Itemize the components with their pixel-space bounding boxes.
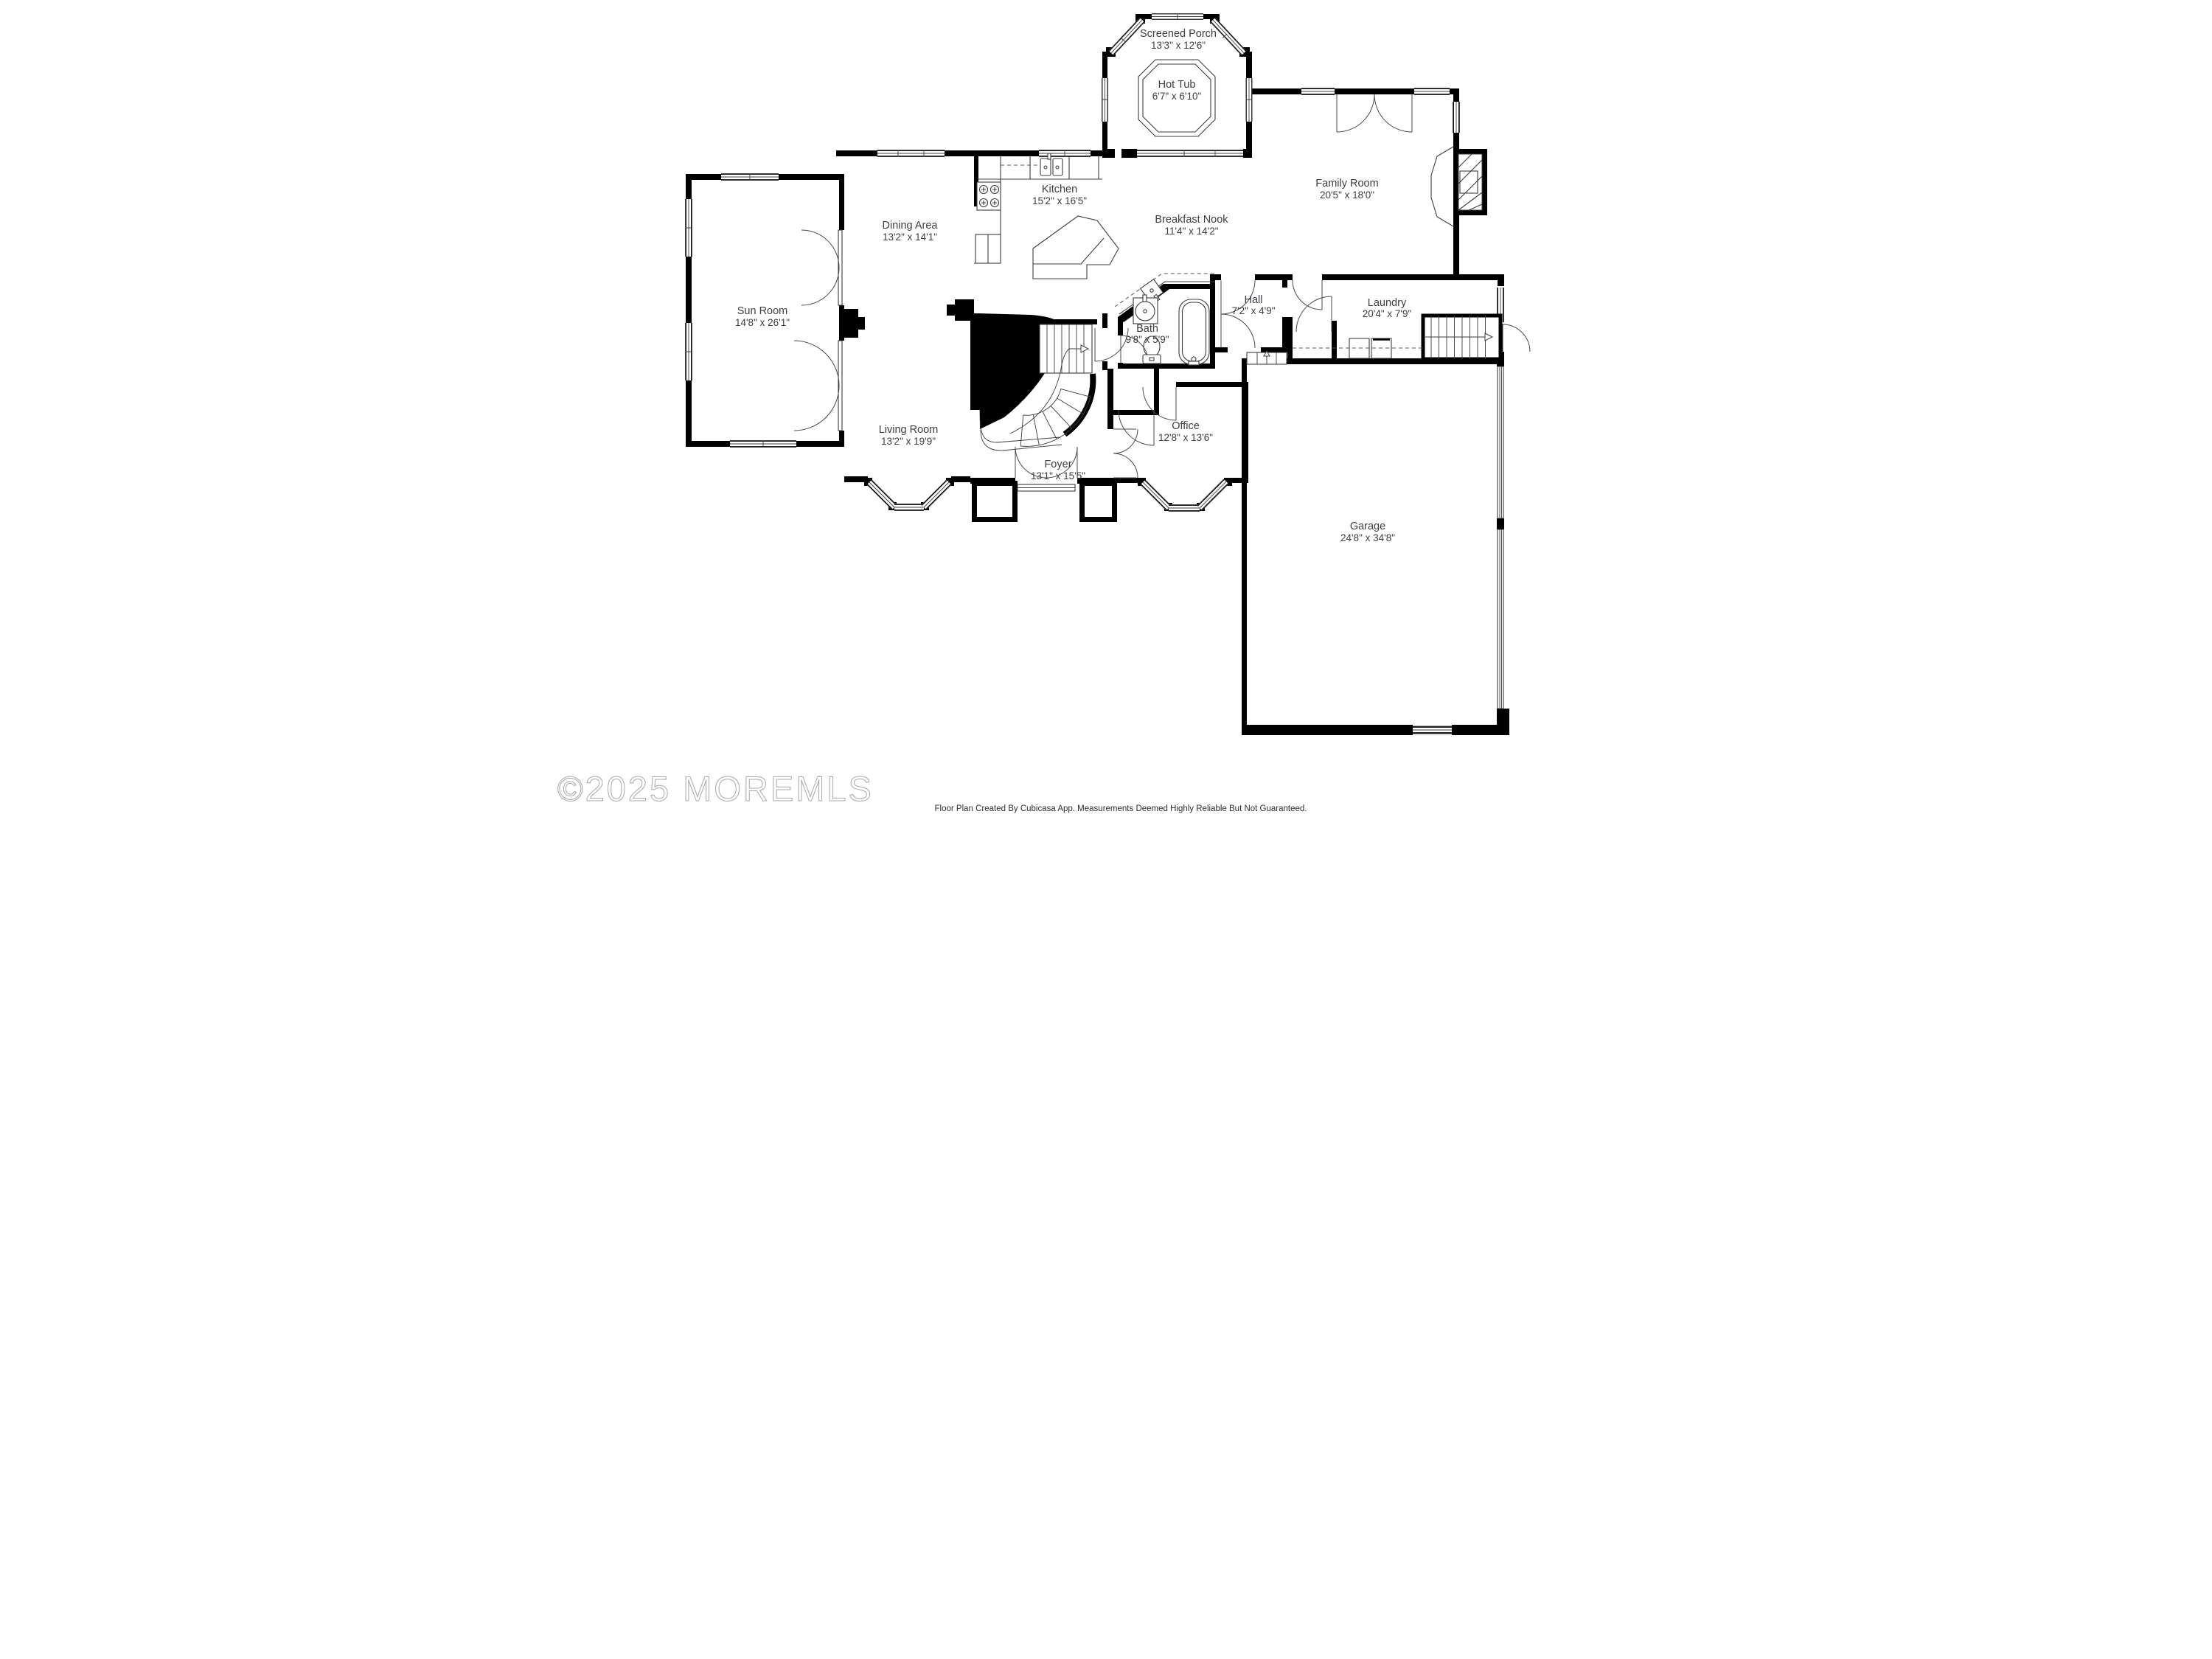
- sun-room-double-door-lower: [794, 341, 842, 431]
- floor-plan-page: Screened Porch 13'3" x 12'6" Hot Tub 6'7…: [553, 0, 1659, 829]
- window-sun-left-2: [686, 323, 692, 380]
- laundry-door: [1293, 280, 1322, 310]
- label-breakfast-nook: Breakfast Nook: [1155, 214, 1228, 226]
- floor-plan-svg: Screened Porch 13'3" x 12'6" Hot Tub 6'7…: [553, 0, 1659, 829]
- window-porch-diag-left: [1109, 18, 1144, 55]
- window-garage-bottom: [1413, 726, 1452, 734]
- bay-window-office: [1141, 479, 1228, 512]
- vestibule-door: [1095, 328, 1128, 361]
- walls: [686, 14, 1509, 735]
- watermark-text: ©2025 MOREMLS: [557, 769, 874, 808]
- label-hall: Hall: [1245, 294, 1263, 306]
- laundry-exterior-door: [1498, 324, 1530, 352]
- windows: [686, 14, 1504, 734]
- label-garage: Garage: [1350, 521, 1385, 532]
- sink-icon: [1133, 295, 1158, 324]
- bathtub-icon: [1179, 299, 1209, 365]
- label-sun-room: Sun Room: [737, 305, 788, 317]
- window-nook-slider: [1137, 150, 1243, 157]
- window-sun-top: [721, 174, 779, 181]
- label-screened-porch: Screened Porch: [1140, 28, 1217, 40]
- fireplace-icon: [1431, 147, 1487, 226]
- label-living-room: Living Room: [879, 424, 939, 436]
- window-family-right: [1453, 102, 1460, 133]
- room-labels: Screened Porch 13'3" x 12'6" Hot Tub 6'7…: [735, 28, 1411, 543]
- fridge-icon: [975, 234, 1001, 263]
- hall-inner-door: [1221, 314, 1255, 348]
- dims-sun-room: 14'8" x 26'1": [735, 317, 790, 328]
- family-room-double-door: [1337, 94, 1412, 132]
- window-dining-top: [877, 150, 945, 157]
- dims-living-room: 13'2" x 19'9": [881, 436, 936, 447]
- dims-foyer: 13'1" x 15'5": [1031, 470, 1085, 481]
- label-foyer: Foyer: [1044, 459, 1071, 470]
- window-sun-left-1: [686, 199, 692, 257]
- stove-icon: [977, 182, 1001, 210]
- dims-office: 12'8" x 13'6": [1158, 432, 1213, 443]
- staircase-basement: [1247, 351, 1287, 364]
- dims-screened-porch: 13'3" x 12'6": [1151, 40, 1206, 51]
- bay-window-living-room: [867, 480, 951, 511]
- window-family-top-2: [1414, 88, 1450, 95]
- garage-door-2: [1498, 529, 1503, 709]
- footer-disclaimer: Floor Plan Created By Cubicasa App. Meas…: [935, 804, 1307, 813]
- office-double-door: [1113, 429, 1138, 478]
- dims-hot-tub: 6'7" x 6'10": [1152, 91, 1202, 102]
- entry-steps: [1018, 484, 1075, 491]
- garage-door-1: [1498, 366, 1503, 518]
- label-bath: Bath: [1136, 323, 1158, 335]
- window-sun-bottom: [730, 441, 796, 448]
- window-porch-left: [1102, 78, 1108, 122]
- dims-dining-area: 13'2" x 14'1": [883, 232, 937, 243]
- dims-garage: 24'8" x 34'8": [1340, 532, 1395, 543]
- label-kitchen: Kitchen: [1042, 184, 1077, 195]
- dims-laundry: 20'4" x 7'9": [1363, 308, 1412, 319]
- dims-breakfast-nook: 11'4" x 14'2": [1164, 226, 1218, 237]
- entry-pier-left: [972, 481, 1018, 522]
- foyer-closet-door: [1119, 410, 1154, 445]
- office-entry-door: [1143, 387, 1176, 420]
- staircase-main: [1423, 316, 1500, 359]
- hearth: [1431, 147, 1453, 226]
- label-office: Office: [1172, 420, 1200, 432]
- dims-bath: 9'8" x 5'9": [1125, 334, 1169, 345]
- label-laundry: Laundry: [1368, 297, 1407, 309]
- entry-pier-right: [1079, 481, 1117, 522]
- window-porch-top: [1152, 14, 1203, 20]
- kitchen-island: [1033, 216, 1119, 279]
- window-family-top-1: [1301, 88, 1335, 95]
- sun-room-double-door-upper: [801, 230, 842, 305]
- dims-hall: 7'2" x 4'9": [1231, 305, 1275, 316]
- laundry-appliances: [1293, 338, 1423, 358]
- label-hot-tub: Hot Tub: [1158, 79, 1196, 91]
- dims-kitchen: 15'2" x 16'5": [1032, 195, 1087, 206]
- window-porch-right: [1246, 78, 1252, 122]
- window-kitchen-top: [1039, 150, 1091, 157]
- label-family-room: Family Room: [1315, 178, 1378, 189]
- label-dining-area: Dining Area: [883, 220, 939, 232]
- dims-family-room: 20'5" x 18'0": [1320, 189, 1374, 201]
